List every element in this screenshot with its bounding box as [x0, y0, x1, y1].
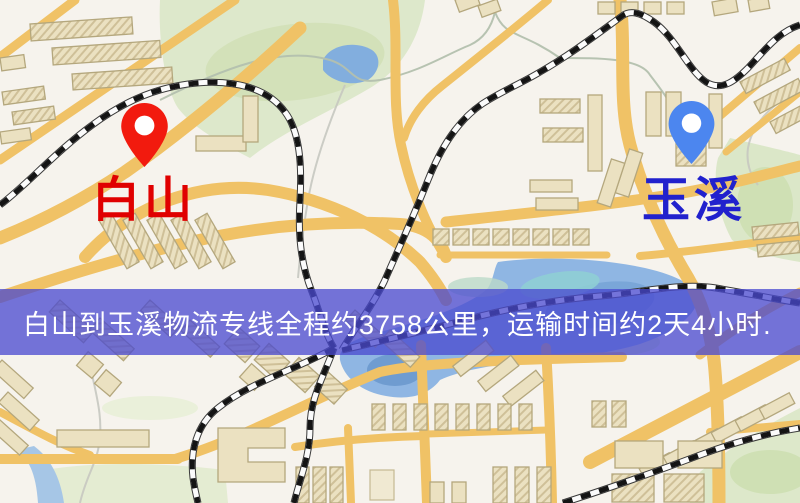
pin-hole: [682, 113, 701, 132]
destination-label: 玉溪: [642, 177, 746, 225]
map-canvas: [0, 0, 800, 503]
route-map[interactable]: 白山 玉溪 白山到玉溪物流专线全程约3758公里，运输时间约2天4小时.: [0, 0, 800, 503]
route-info-banner: 白山到玉溪物流专线全程约3758公里，运输时间约2天4小时.: [0, 289, 800, 355]
origin-pin[interactable]: [121, 103, 168, 167]
origin-label: 白山: [92, 177, 196, 225]
destination-pin[interactable]: [667, 101, 716, 164]
route-info-text: 白山到玉溪物流专线全程约3758公里，运输时间约2天4小时.: [0, 303, 772, 342]
pin-hole: [135, 116, 155, 136]
